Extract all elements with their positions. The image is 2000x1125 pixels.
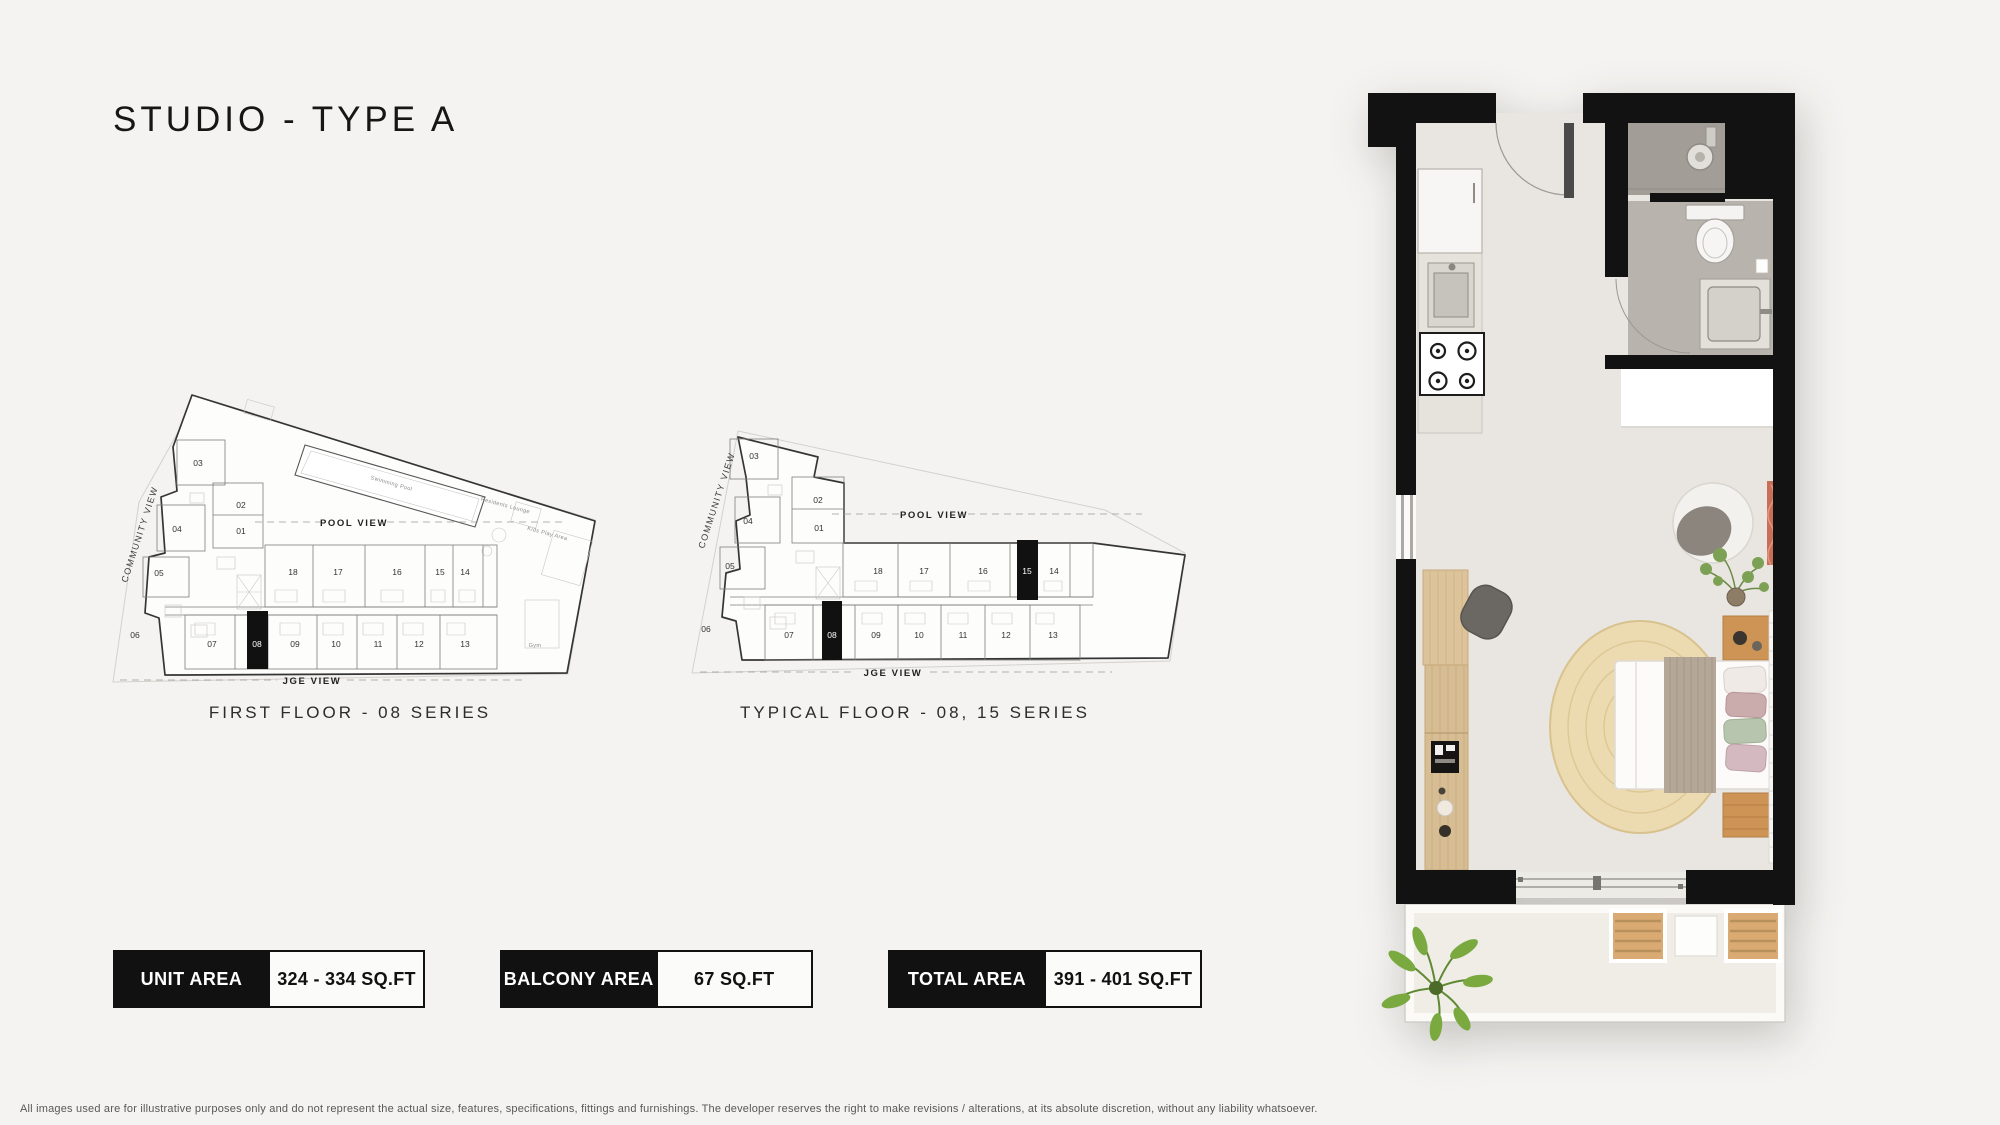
fridge xyxy=(1418,169,1482,253)
decor-vase xyxy=(1437,800,1453,816)
disclaimer: All images used are for illustrative pur… xyxy=(20,1103,1318,1115)
unit-number: 05 xyxy=(154,568,164,578)
building-outline xyxy=(145,395,595,675)
wall-bathroom-divider xyxy=(1605,93,1628,277)
balcony-chair xyxy=(1726,911,1780,961)
wall-top-left xyxy=(1368,93,1496,123)
entry-door-leaf xyxy=(1564,123,1574,198)
unit-number: 16 xyxy=(392,567,402,577)
sliding-door xyxy=(1516,872,1686,898)
building-outline xyxy=(722,437,1185,660)
balcony-chair xyxy=(1611,911,1665,961)
wall-bottom-right xyxy=(1686,870,1795,904)
unit-number: 18 xyxy=(873,566,883,576)
unit-number-highlighted: 08 xyxy=(827,630,837,640)
wall-top-left-chunk xyxy=(1368,123,1416,147)
balcony xyxy=(1380,904,1785,1042)
unit-number: 16 xyxy=(978,566,988,576)
page: STUDIO - TYPE A Swimming Pool xyxy=(0,0,2000,1125)
total-area-label: TOTAL AREA xyxy=(890,952,1044,1006)
unit-area-label: UNIT AREA xyxy=(115,952,268,1006)
unit-number: 06 xyxy=(130,630,140,640)
unit-number: 01 xyxy=(814,523,824,533)
unit-number: 13 xyxy=(1048,630,1058,640)
unit-number: 12 xyxy=(414,639,424,649)
balcony-area-value: 67 SQ.FT xyxy=(656,952,812,1006)
decor-vase xyxy=(1439,825,1451,837)
jge-view-label: JGE VIEW xyxy=(864,668,923,679)
bed-bench xyxy=(1723,793,1773,837)
unit-number: 01 xyxy=(236,526,246,536)
unit-number-highlighted: 08 xyxy=(252,639,262,649)
balcony-table xyxy=(1675,916,1717,956)
kitchen xyxy=(1418,169,1484,433)
unit-number: 10 xyxy=(914,630,924,640)
wall-left-upper xyxy=(1396,145,1416,495)
unit-number: 03 xyxy=(193,458,203,468)
unit-number: 13 xyxy=(460,639,470,649)
unit-number: 04 xyxy=(172,524,182,534)
typical-floor-plan: 01 02 03 04 05 06 07 08 09 10 11 12 13 1… xyxy=(680,425,1210,705)
nightstand xyxy=(1723,616,1773,660)
pool-view-label: POOL VIEW xyxy=(900,510,968,521)
unit-number: 09 xyxy=(290,639,300,649)
wall-bathroom-bottom xyxy=(1605,355,1773,369)
sideboard xyxy=(1425,665,1468,870)
total-area-value: 391 - 401 SQ.FT xyxy=(1044,952,1200,1006)
typical-floor-caption: TYPICAL FLOOR - 08, 15 SERIES xyxy=(655,703,1175,723)
unit-number: 11 xyxy=(374,639,383,649)
wall-shower-chunk xyxy=(1725,111,1775,199)
unit-number: 09 xyxy=(871,630,881,640)
unit-number: 07 xyxy=(784,630,794,640)
unit-number: 07 xyxy=(207,639,217,649)
speaker xyxy=(1431,741,1459,773)
unit-number: 02 xyxy=(813,495,823,505)
unit-number: 14 xyxy=(460,567,470,577)
unit-number: 02 xyxy=(236,500,246,510)
decor-vase xyxy=(1439,788,1446,795)
gym-label: Gym xyxy=(529,643,542,649)
window xyxy=(1396,495,1416,559)
first-floor-plan: Swimming Pool xyxy=(95,385,635,700)
unit-number: 04 xyxy=(743,516,753,526)
stove xyxy=(1420,333,1484,395)
unit-number: 03 xyxy=(749,451,759,461)
unit-number: 15 xyxy=(435,567,445,577)
unit-number: 17 xyxy=(333,567,343,577)
unit-number: 14 xyxy=(1049,566,1059,576)
unit-number: 18 xyxy=(288,567,298,577)
total-area-box: TOTAL AREA 391 - 401 SQ.FT xyxy=(888,950,1202,1008)
first-floor-caption: FIRST FLOOR - 08 SERIES xyxy=(85,703,615,723)
studio-unit-render xyxy=(1368,93,1820,1058)
kitchen-sink xyxy=(1428,263,1474,327)
wall-shower-divider xyxy=(1650,193,1725,202)
wall-right xyxy=(1773,93,1795,905)
blanket xyxy=(1664,657,1716,793)
unit-area-box: UNIT AREA 324 - 334 SQ.FT xyxy=(113,950,425,1008)
pool-view-label: POOL VIEW xyxy=(320,518,388,529)
unit-area-value: 324 - 334 SQ.FT xyxy=(268,952,423,1006)
closet xyxy=(1621,369,1773,427)
wall-left-lower xyxy=(1396,559,1416,870)
unit-number: 11 xyxy=(959,630,968,640)
bed xyxy=(1615,657,1775,793)
jge-view-label: JGE VIEW xyxy=(283,676,342,687)
wall-bottom-left xyxy=(1396,870,1516,904)
unit-number: 06 xyxy=(701,624,711,634)
unit-number: 05 xyxy=(725,561,735,571)
unit-number-highlighted: 15 xyxy=(1022,566,1032,576)
balcony-area-box: BALCONY AREA 67 SQ.FT xyxy=(500,950,813,1008)
balcony-area-label: BALCONY AREA xyxy=(502,952,656,1006)
community-view-label: COMMUNITY VIEW xyxy=(696,451,737,550)
unit-number: 10 xyxy=(331,639,341,649)
page-title: STUDIO - TYPE A xyxy=(113,100,458,140)
unit-number: 17 xyxy=(919,566,929,576)
unit-number: 12 xyxy=(1001,630,1011,640)
